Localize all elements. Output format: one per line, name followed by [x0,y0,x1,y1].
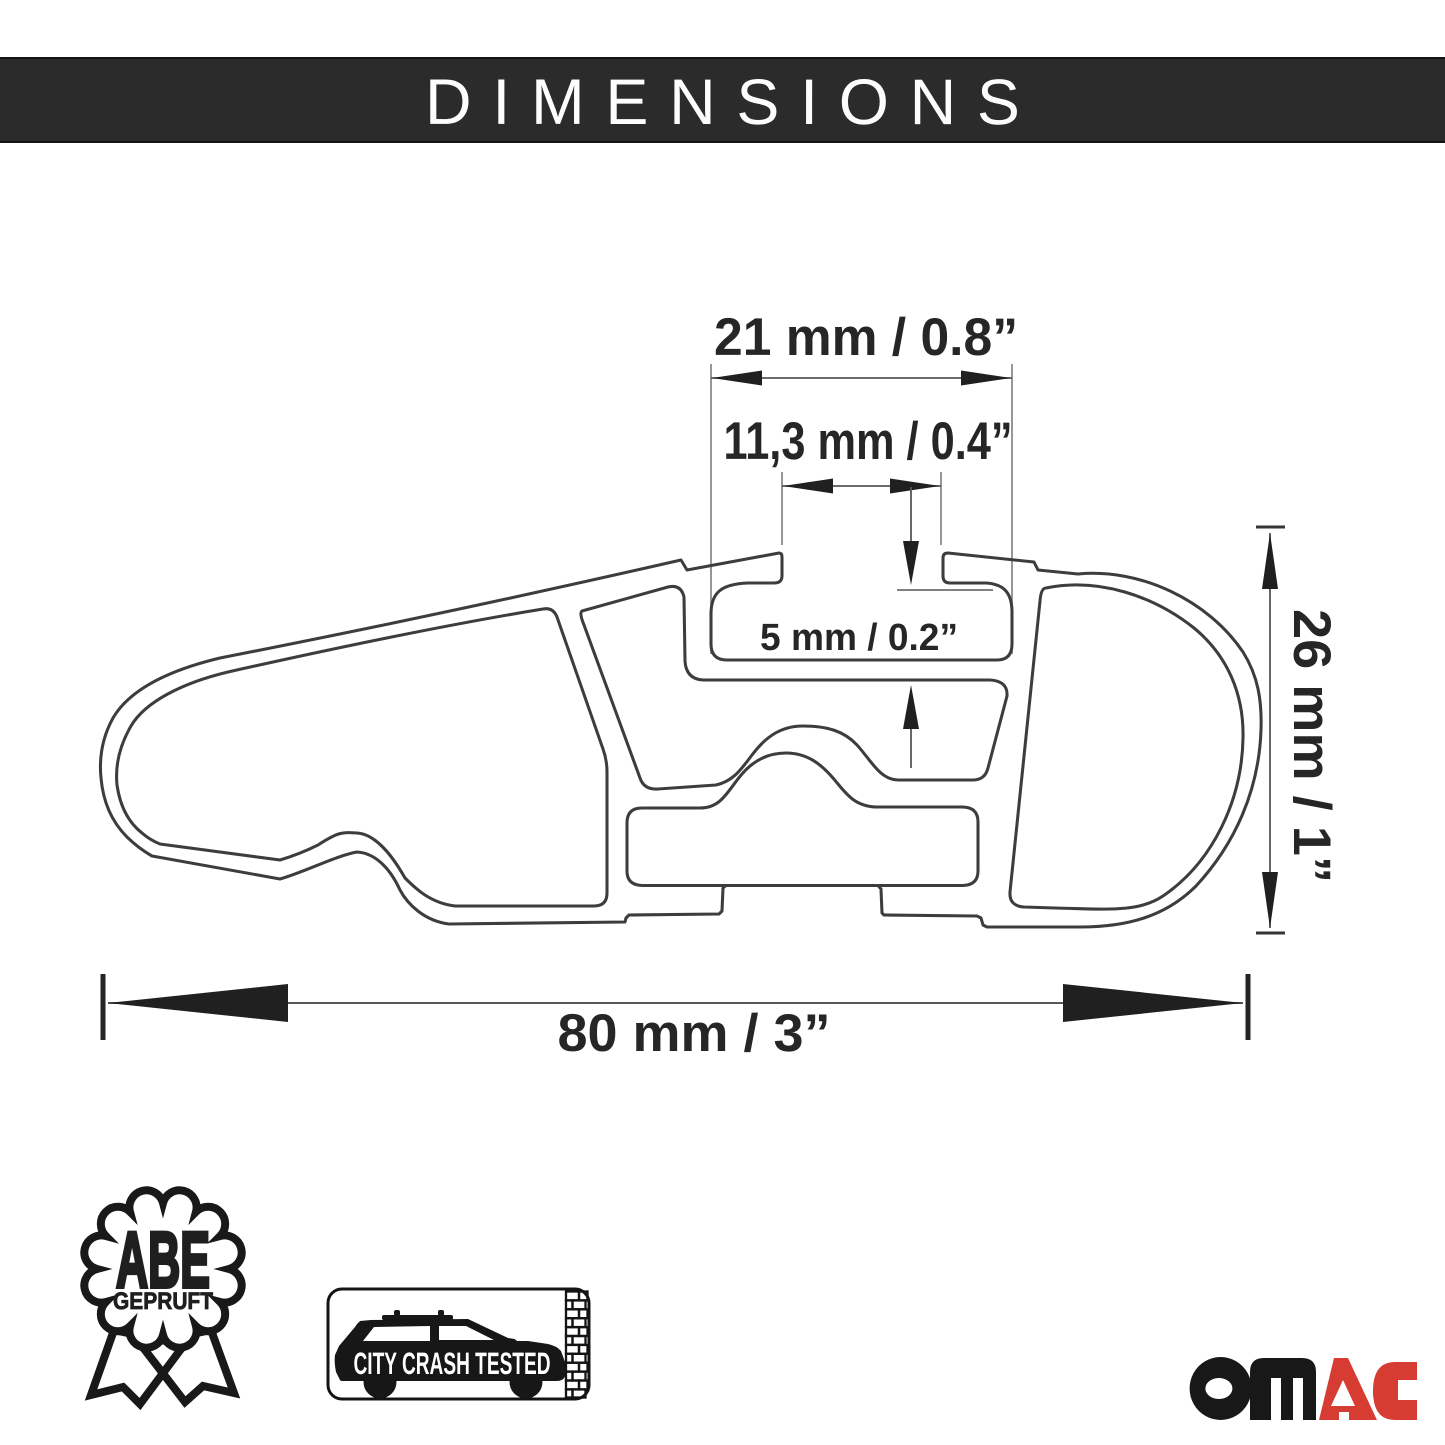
svg-text:GEPRUFT: GEPRUFT [113,1288,213,1315]
svg-text:21 mm / 0.8”: 21 mm / 0.8” [714,308,1018,367]
svg-text:80 mm / 3”: 80 mm / 3” [557,1004,830,1063]
svg-text:CITY CRASH TESTED: CITY CRASH TESTED [353,1346,550,1381]
svg-text:5 mm / 0.2”: 5 mm / 0.2” [760,617,958,659]
svg-text:11,3 mm / 0.4”: 11,3 mm / 0.4” [723,412,1012,471]
svg-text:26 mm / 1”: 26 mm / 1” [1282,609,1341,883]
